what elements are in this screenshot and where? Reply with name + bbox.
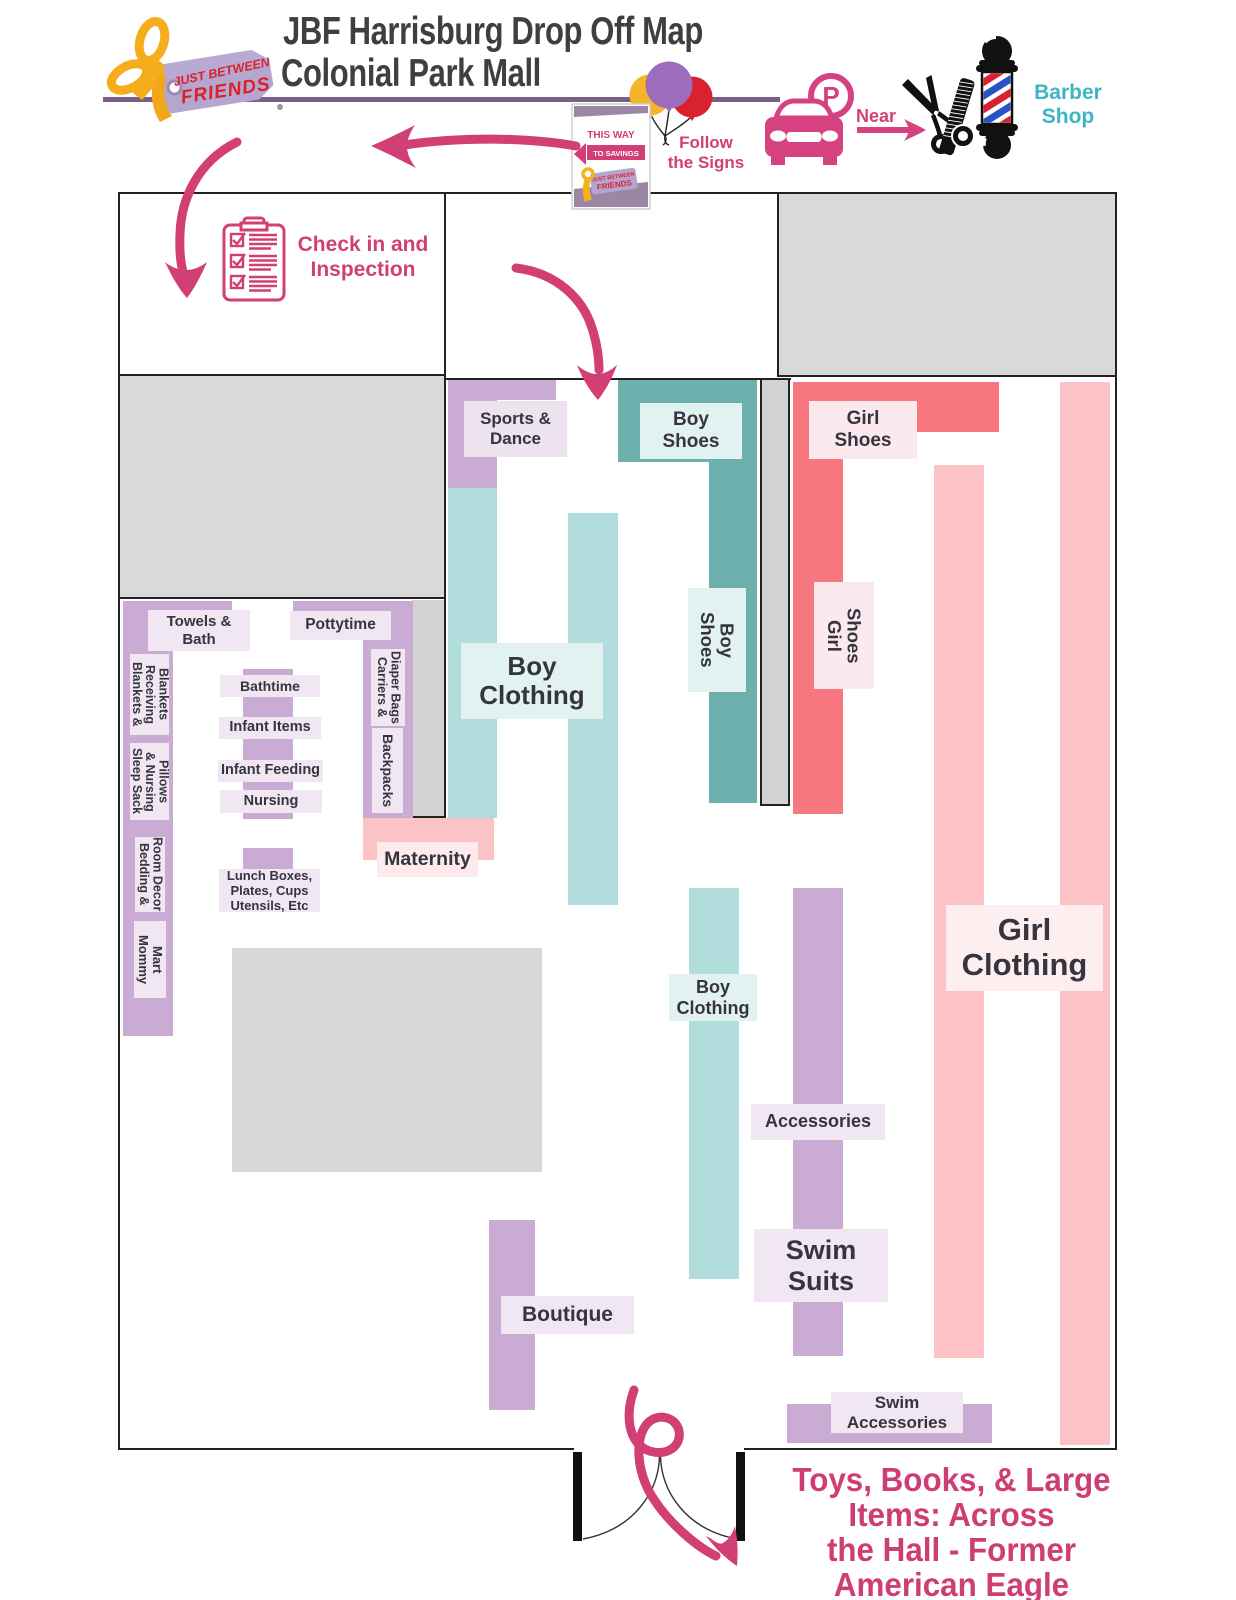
svg-text:THIS WAY: THIS WAY (587, 130, 635, 141)
svg-text:TO SAVINGS: TO SAVINGS (593, 149, 639, 158)
